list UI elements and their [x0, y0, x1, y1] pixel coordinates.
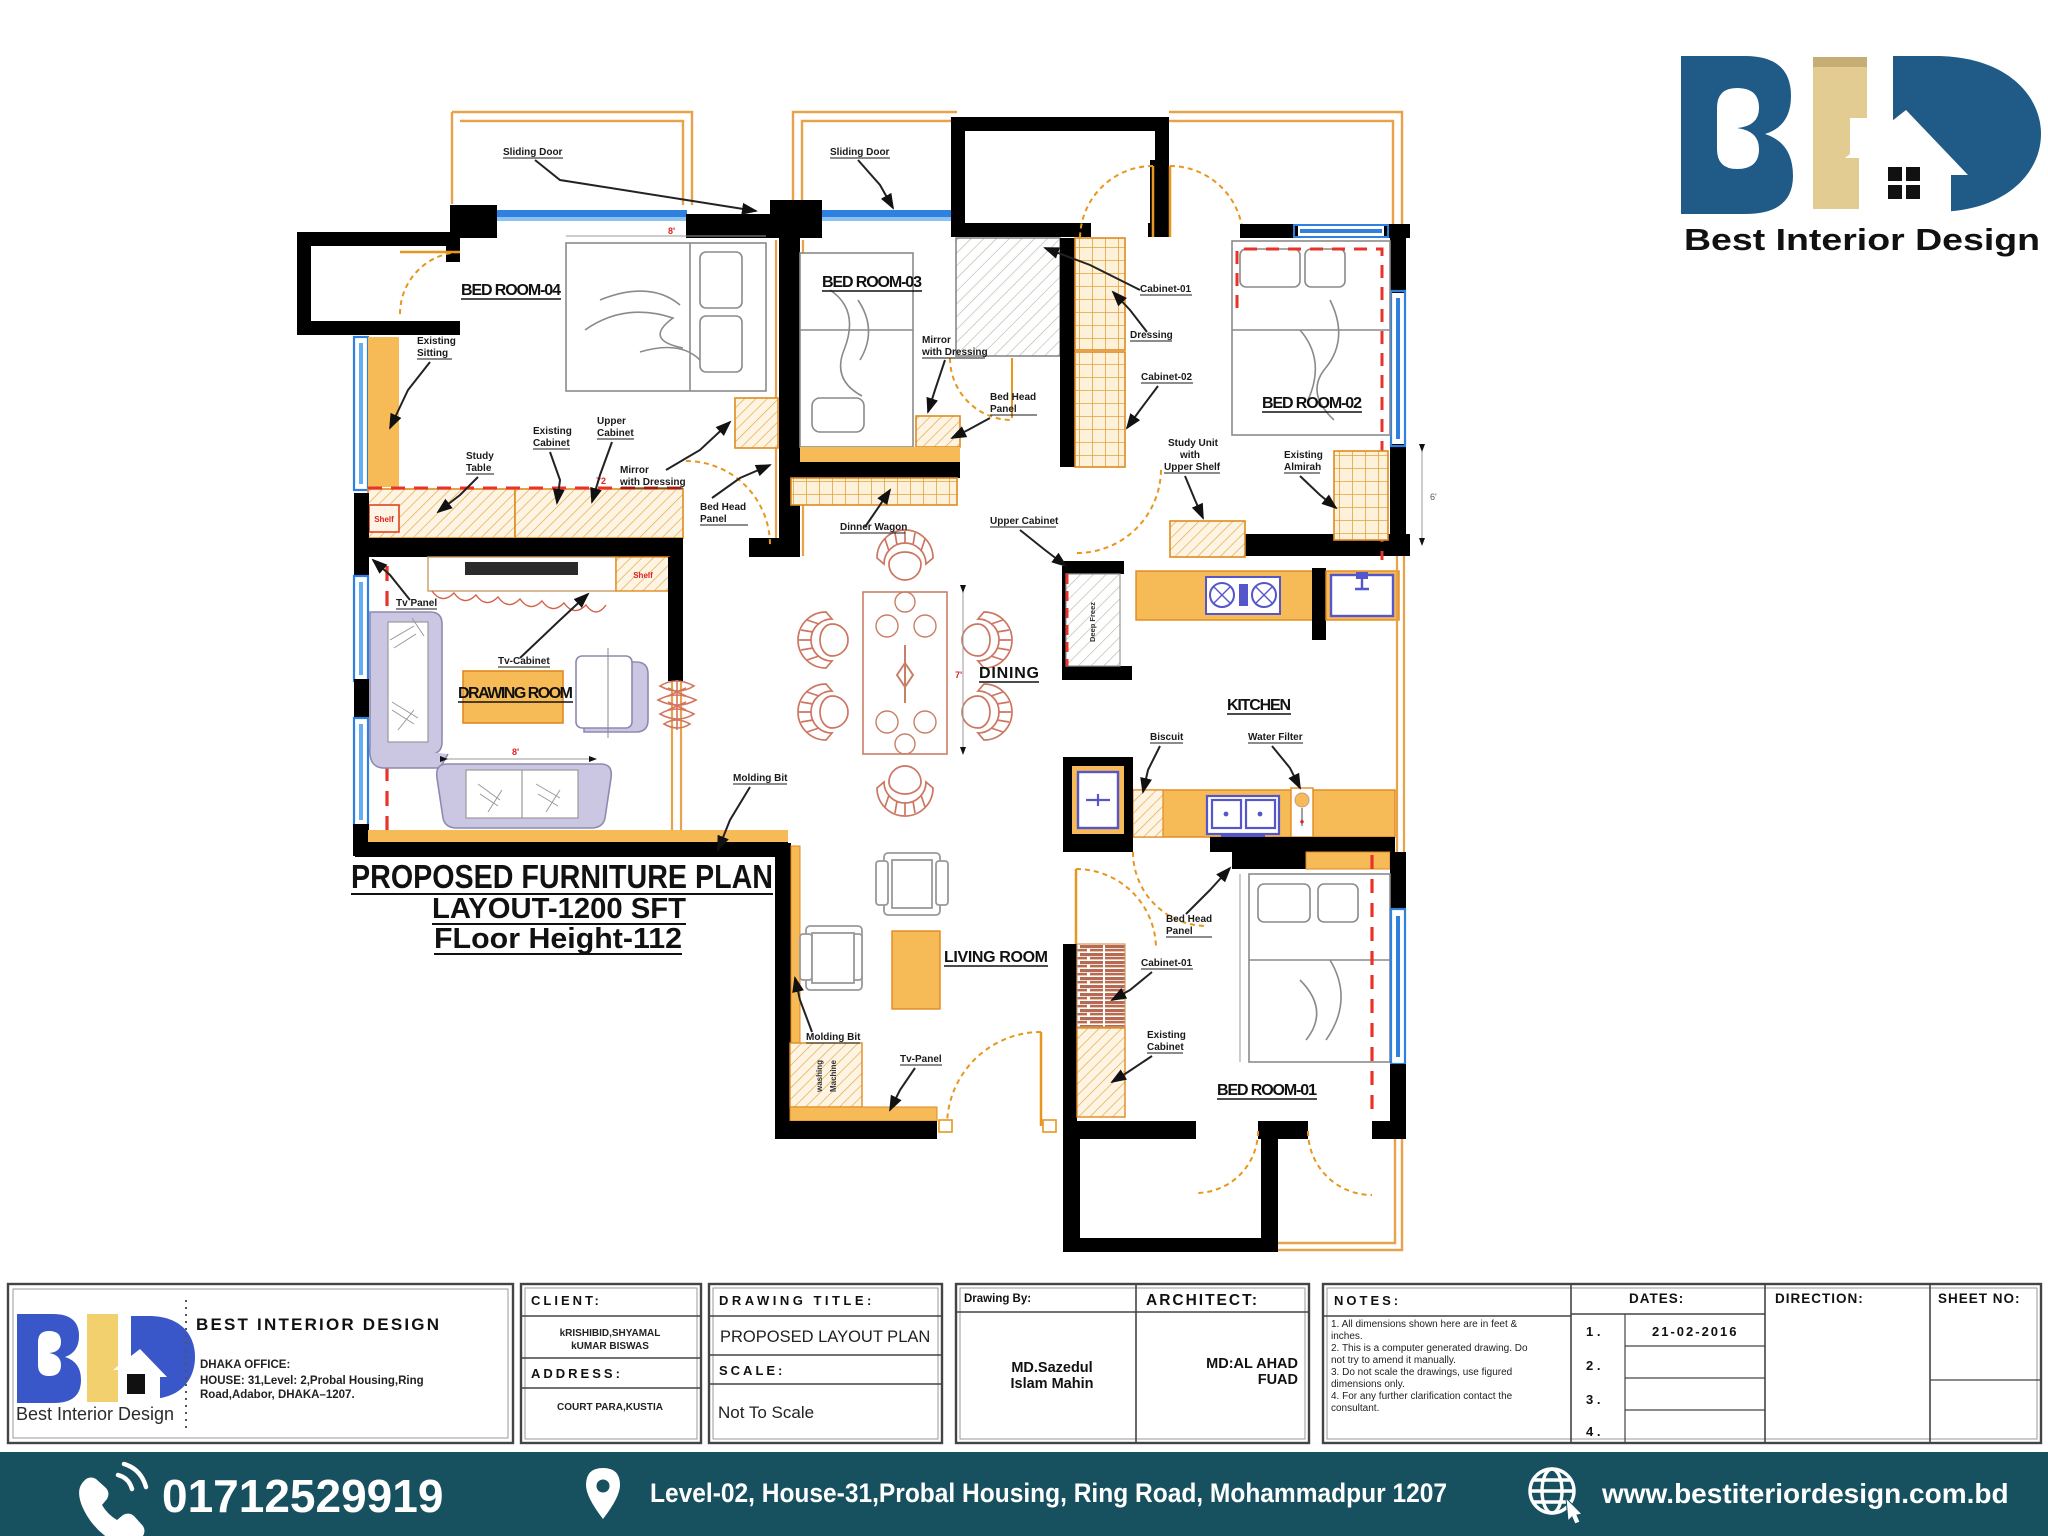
- svg-text:DINING: DINING: [979, 665, 1039, 682]
- svg-text:dimensions only.: dimensions only.: [1331, 1379, 1405, 1390]
- svg-text:3. Do not scale the drawings,: 3. Do not scale the drawings, use figure…: [1331, 1367, 1512, 1378]
- svg-text:DRAWING ROOM: DRAWING ROOM: [458, 685, 573, 702]
- svg-text:Panel: Panel: [1166, 926, 1193, 937]
- svg-text:MD:AL AHAD: MD:AL AHAD: [1206, 1356, 1298, 1372]
- svg-text:with Dressing: with Dressing: [921, 347, 988, 358]
- svg-text:BEST INTERIOR DESIGN: BEST INTERIOR DESIGN: [196, 1315, 441, 1334]
- svg-text:Best Interior Design: Best Interior Design: [16, 1404, 174, 1424]
- svg-text:BED ROOM-01: BED ROOM-01: [1217, 1082, 1317, 1099]
- svg-text:NOTES:: NOTES:: [1334, 1293, 1401, 1308]
- svg-text:ARCHITECT:: ARCHITECT:: [1146, 1292, 1259, 1309]
- svg-text:7': 7': [955, 670, 962, 680]
- svg-text:Upper Shelf: Upper Shelf: [1164, 462, 1221, 473]
- svg-text:Cabinet: Cabinet: [533, 438, 570, 449]
- svg-text:Existing: Existing: [1284, 450, 1323, 461]
- svg-text:MD.Sazedul: MD.Sazedul: [1011, 1360, 1092, 1376]
- svg-text:Bed Head: Bed Head: [1166, 914, 1212, 925]
- svg-text:LAYOUT-1200 SFT: LAYOUT-1200 SFT: [432, 893, 686, 925]
- svg-text:CLIENT:: CLIENT:: [531, 1293, 602, 1308]
- svg-text:www.bestiteriordesign.com.bd: www.bestiteriordesign.com.bd: [1601, 1478, 2009, 1509]
- svg-text:Cabinet-02: Cabinet-02: [1141, 372, 1193, 383]
- svg-text:SCALE:: SCALE:: [719, 1363, 785, 1378]
- svg-text:Bed Head: Bed Head: [700, 502, 746, 513]
- svg-text:Dinner Wagon: Dinner Wagon: [840, 522, 907, 533]
- svg-text:inches.: inches.: [1331, 1331, 1363, 1342]
- svg-text:Cabinet-01: Cabinet-01: [1141, 958, 1193, 969]
- svg-text:kUMAR BISWAS: kUMAR BISWAS: [571, 1341, 649, 1352]
- svg-text:BED ROOM-04: BED ROOM-04: [461, 282, 561, 299]
- svg-text:Upper Cabinet: Upper Cabinet: [990, 516, 1059, 527]
- svg-text:DRAWING TITLE:: DRAWING TITLE:: [719, 1293, 875, 1308]
- svg-text:Study: Study: [466, 451, 494, 462]
- svg-text:8': 8': [668, 226, 675, 236]
- svg-text:PROPOSED LAYOUT PLAN: PROPOSED LAYOUT PLAN: [720, 1328, 930, 1346]
- svg-text:4. For any further clarificati: 4. For any further clarification contact…: [1331, 1391, 1513, 1402]
- svg-text:Study Unit: Study Unit: [1168, 438, 1219, 449]
- svg-text:2 .: 2 .: [1586, 1358, 1600, 1373]
- svg-text:Not To Scale: Not To Scale: [718, 1403, 814, 1422]
- svg-text:Sitting: Sitting: [417, 348, 448, 359]
- svg-text:Tv Panel: Tv Panel: [396, 598, 437, 609]
- svg-text:LIVING ROOM: LIVING ROOM: [944, 949, 1048, 966]
- svg-text:with: with: [1179, 450, 1200, 461]
- svg-text:4 .: 4 .: [1586, 1424, 1600, 1439]
- svg-text:HOUSE: 31,Level: 2,Probal H: HOUSE: 31,Level: 2,Probal Housing,Ring: [200, 1375, 424, 1387]
- svg-text:Almirah: Almirah: [1284, 462, 1321, 473]
- svg-text:Water Filter: Water Filter: [1248, 732, 1303, 743]
- svg-text:Tv-Cabinet: Tv-Cabinet: [498, 656, 550, 667]
- svg-text:8': 8': [512, 747, 519, 757]
- svg-text:Biscuit: Biscuit: [1150, 732, 1184, 743]
- svg-text:Best Interior Design: Best Interior Design: [1684, 222, 2040, 257]
- svg-text:1. All dimensions shown here a: 1. All dimensions shown here are in feet…: [1331, 1319, 1518, 1330]
- svg-text:21-02-2016: 21-02-2016: [1652, 1324, 1739, 1339]
- svg-text:6': 6': [1430, 492, 1437, 502]
- svg-text:●: ●: [1300, 817, 1305, 826]
- svg-text:Mirror: Mirror: [922, 335, 951, 346]
- svg-text:SHEET NO:: SHEET NO:: [1938, 1291, 2021, 1306]
- svg-text:DIRECTION:: DIRECTION:: [1775, 1291, 1864, 1306]
- svg-text:Cabinet-01: Cabinet-01: [1140, 284, 1192, 295]
- svg-text:01712529919: 01712529919: [162, 1470, 443, 1522]
- svg-text:KITCHEN: KITCHEN: [1227, 697, 1291, 714]
- svg-text:Existing: Existing: [533, 426, 572, 437]
- svg-text:Cabinet: Cabinet: [1147, 1042, 1184, 1053]
- svg-text:PROPOSED FURNITURE PLAN: PROPOSED FURNITURE PLAN: [351, 858, 773, 895]
- svg-text:Table: Table: [466, 463, 492, 474]
- svg-text:Level-02, House-31,Probal Hous: Level-02, House-31,Probal Housing, Ring …: [650, 1478, 1447, 1508]
- svg-text:Tv-Panel: Tv-Panel: [900, 1054, 942, 1065]
- svg-text:not try to amend it manually.: not try to amend it manually.: [1331, 1355, 1456, 1366]
- svg-text:Deep Freez: Deep Freez: [1088, 602, 1097, 642]
- svg-text:FLoor Height-112: FLoor Height-112: [434, 923, 682, 955]
- svg-text:Drawing By:: Drawing By:: [964, 1293, 1031, 1305]
- svg-text:Islam Mahin: Islam Mahin: [1011, 1376, 1094, 1392]
- svg-text:Panel: Panel: [700, 514, 727, 525]
- svg-text:3 .: 3 .: [1586, 1392, 1600, 1407]
- svg-text:FUAD: FUAD: [1258, 1372, 1298, 1388]
- svg-text:Bed Head: Bed Head: [990, 392, 1036, 403]
- svg-text:Sliding Door: Sliding Door: [830, 147, 890, 158]
- svg-text:DHAKA OFFICE:: DHAKA OFFICE:: [200, 1359, 290, 1371]
- svg-text:Molding Bit: Molding Bit: [806, 1032, 861, 1043]
- svg-text:1 .: 1 .: [1586, 1324, 1600, 1339]
- svg-text:Machine: Machine: [829, 1059, 838, 1092]
- svg-text:Existing: Existing: [1147, 1030, 1186, 1041]
- svg-text:ADDRESS:: ADDRESS:: [531, 1366, 623, 1381]
- svg-text:Shelf: Shelf: [633, 571, 653, 580]
- svg-text:consultant.: consultant.: [1331, 1403, 1379, 1414]
- svg-text:DATES:: DATES:: [1629, 1291, 1684, 1306]
- svg-text:Road,Adabor, DHAKA–1207.: Road,Adabor, DHAKA–1207.: [200, 1389, 355, 1401]
- svg-text:Mirror: Mirror: [620, 465, 649, 476]
- svg-text:COURT PARA,KUSTIA: COURT PARA,KUSTIA: [557, 1402, 663, 1413]
- svg-text:Shelf: Shelf: [374, 515, 394, 524]
- svg-text:Cabinet: Cabinet: [597, 428, 634, 439]
- svg-text:with Dressing: with Dressing: [619, 477, 686, 488]
- svg-text:Panel: Panel: [990, 404, 1017, 415]
- svg-text:Molding Bit: Molding Bit: [733, 773, 788, 784]
- svg-text:BED ROOM-03: BED ROOM-03: [822, 274, 922, 291]
- svg-text:Existing: Existing: [417, 336, 456, 347]
- svg-text:washing: washing: [815, 1060, 824, 1093]
- svg-text:kRISHIBID,SHYAMAL: kRISHIBID,SHYAMAL: [560, 1328, 661, 1339]
- svg-text:2. This is a computer generate: 2. This is a computer generated drawing.…: [1331, 1343, 1528, 1354]
- svg-text:Upper: Upper: [597, 416, 626, 427]
- svg-text:BED ROOM-02: BED ROOM-02: [1262, 395, 1362, 412]
- svg-text:Sliding Door: Sliding Door: [503, 147, 563, 158]
- svg-text:Dressing: Dressing: [1130, 330, 1173, 341]
